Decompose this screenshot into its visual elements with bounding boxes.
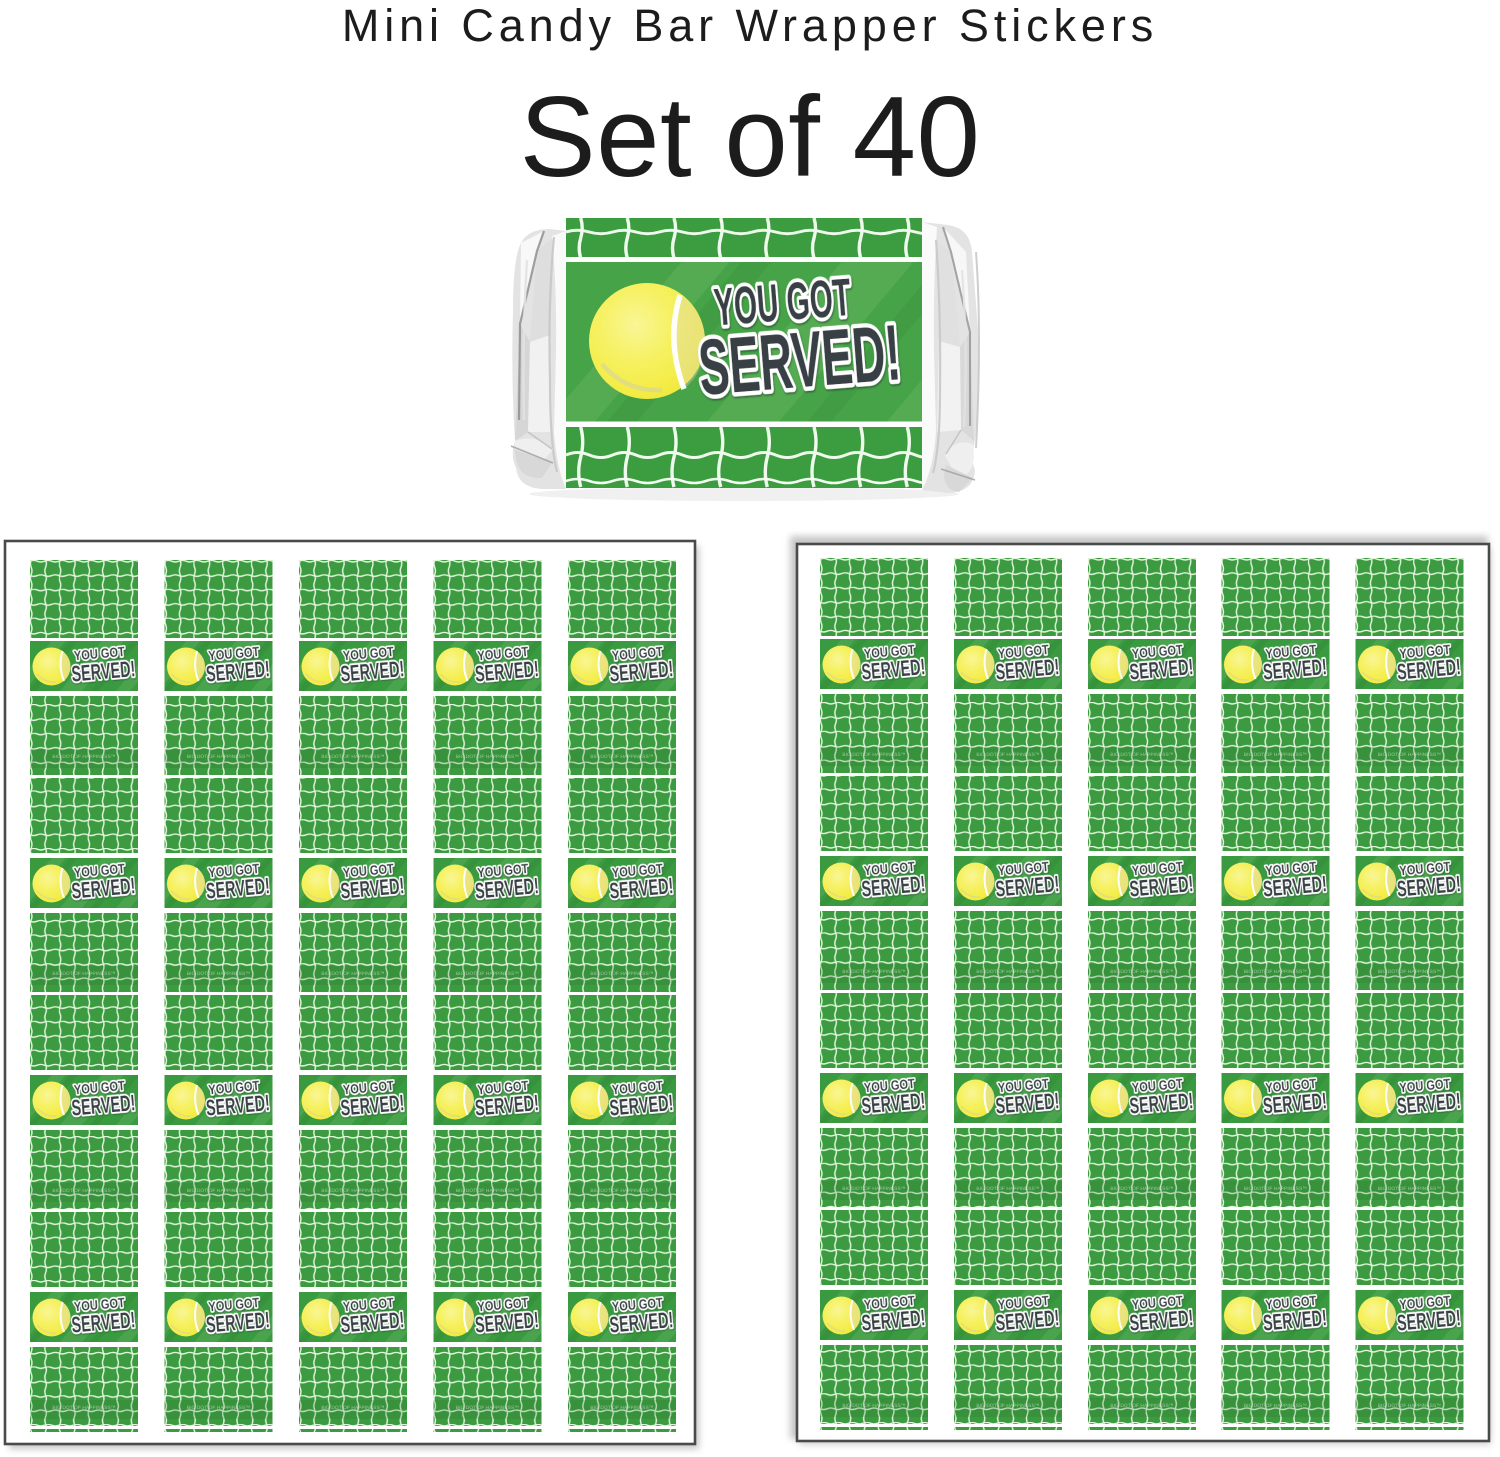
svg-text:SERVED!: SERVED! xyxy=(695,307,903,412)
